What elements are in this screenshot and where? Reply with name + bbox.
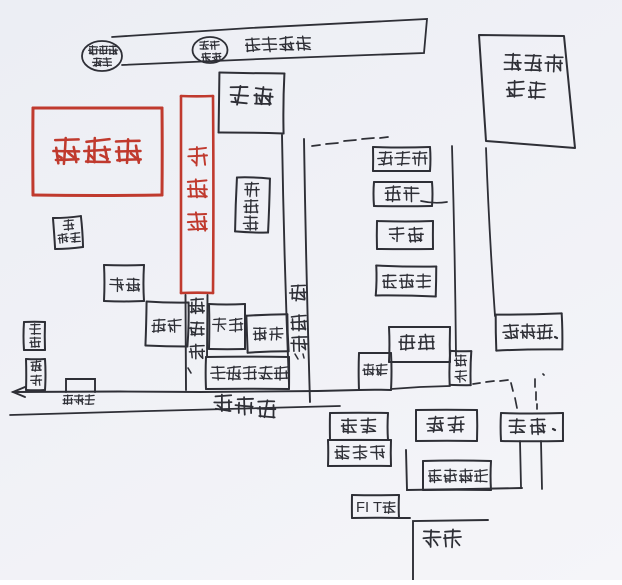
svg-text:F: F: [356, 500, 365, 516]
svg-text:I: I: [365, 500, 369, 516]
svg-text:T: T: [373, 500, 382, 516]
